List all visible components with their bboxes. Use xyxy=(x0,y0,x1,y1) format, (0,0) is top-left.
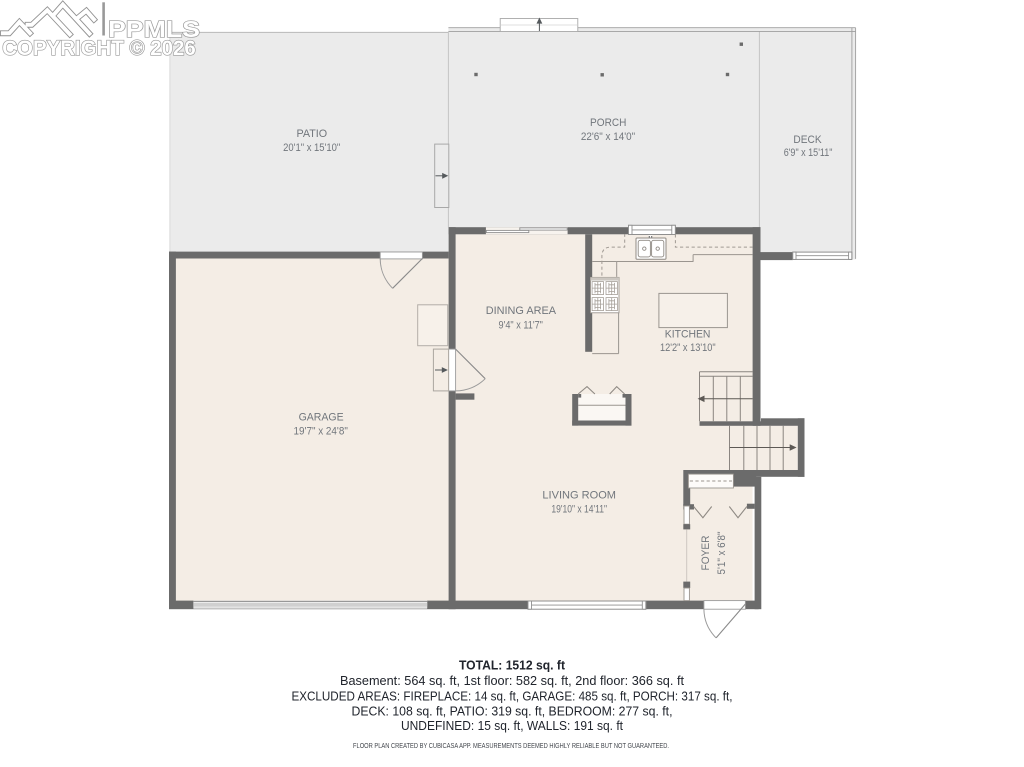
svg-text:20'1" x 15'10": 20'1" x 15'10" xyxy=(283,142,340,154)
svg-text:EXCLUDED AREAS: FIREPLACE: 14: EXCLUDED AREAS: FIREPLACE: 14 sq. ft, GA… xyxy=(292,688,733,703)
svg-text:LIVING ROOM: LIVING ROOM xyxy=(542,490,616,502)
svg-text:UNDEFINED: 15 sq. ft, WALLS: 1: UNDEFINED: 15 sq. ft, WALLS: 191 sq. ft xyxy=(401,718,623,733)
svg-text:9'4" x 11'7": 9'4" x 11'7" xyxy=(499,319,544,331)
svg-text:12'2" x 13'10": 12'2" x 13'10" xyxy=(660,342,716,354)
svg-text:5'1" x 6'8": 5'1" x 6'8" xyxy=(716,531,728,574)
svg-text:COPYRIGHT © 2026: COPYRIGHT © 2026 xyxy=(2,37,195,60)
svg-text:TOTAL: 1512 sq. ft: TOTAL: 1512 sq. ft xyxy=(459,658,566,673)
svg-text:DINING AREA: DINING AREA xyxy=(486,305,557,317)
svg-text:PATIO: PATIO xyxy=(296,128,327,140)
svg-text:22'6" x 14'0": 22'6" x 14'0" xyxy=(581,131,635,143)
svg-text:DECK: 108 sq. ft, PATIO: 319 s: DECK: 108 sq. ft, PATIO: 319 sq. ft, BED… xyxy=(352,703,673,718)
svg-text:6'9" x 15'11": 6'9" x 15'11" xyxy=(784,147,833,159)
svg-text:19'7" x 24'8": 19'7" x 24'8" xyxy=(294,426,349,438)
svg-text:FOYER: FOYER xyxy=(700,536,712,571)
svg-text:FLOOR PLAN CREATED BY CUBICASA: FLOOR PLAN CREATED BY CUBICASA APP. MEAS… xyxy=(353,743,669,750)
svg-text:19'10" x 14'11": 19'10" x 14'11" xyxy=(551,503,607,515)
svg-text:DECK: DECK xyxy=(793,134,822,146)
svg-text:Basement: 564 sq. ft, 1st floo: Basement: 564 sq. ft, 1st floor: 582 sq.… xyxy=(340,673,684,688)
svg-text:PORCH: PORCH xyxy=(590,117,626,129)
svg-text:GARAGE: GARAGE xyxy=(299,412,344,424)
svg-text:KITCHEN: KITCHEN xyxy=(665,329,711,341)
